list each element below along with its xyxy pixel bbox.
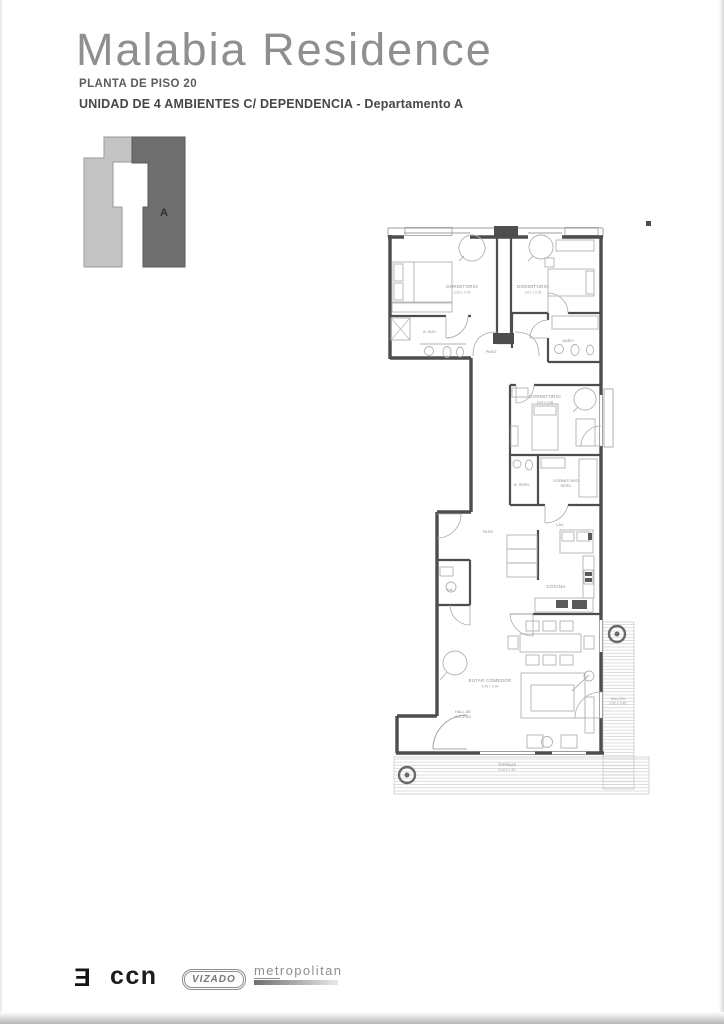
armchair-round <box>443 651 467 675</box>
label-dormitorio-1: DORMITORIO <box>446 284 478 289</box>
desk <box>576 419 595 446</box>
plan-furniture <box>391 235 598 748</box>
metropolitan-prefix: met <box>254 963 280 979</box>
ccn-logo: ccn <box>110 962 158 991</box>
armchair-round <box>574 388 596 410</box>
vizado-badge-logo: VIZADO <box>182 969 246 990</box>
metropolitan-rest: ropolitan <box>280 963 342 978</box>
bathroom-fixtures <box>552 316 598 356</box>
label-dorm-serv-2: SERV. <box>560 483 571 488</box>
label-bano-serv: B. SERV. <box>514 482 530 487</box>
key-plan-light-unit <box>84 137 132 267</box>
label-estar-dims: 5.48 x 6.90 <box>482 685 499 689</box>
bedroom3-balcony-rail <box>604 389 613 447</box>
label-balcon-dims: 0.90 x 5.45 <box>610 702 627 706</box>
label-terraza: TERRAZA <box>498 762 517 767</box>
label-bano: BAÑO <box>562 338 573 343</box>
bed-single <box>532 404 558 450</box>
bed-double <box>392 262 452 312</box>
label-paso-2: PASO <box>483 529 494 534</box>
label-hall-2: ACCESO <box>455 714 471 719</box>
label-dormitorio-2-dims: 3.07 x 3.05 <box>525 291 542 295</box>
brochure-page: Malabia Residence PLANTA DE PISO 20 UNID… <box>0 0 724 1024</box>
label-dormitorio-1-dims: 3.28 x 3.05 <box>454 291 471 295</box>
bed-single <box>548 269 594 296</box>
label-toilette: Toil. <box>447 587 454 592</box>
page-edge-left <box>0 0 2 1024</box>
label-lavadero: LAV. <box>556 522 564 527</box>
label-estar: ESTAR COMEDOR <box>469 678 512 683</box>
armchair-round <box>529 235 553 259</box>
vizado-badge-text: VIZADO <box>192 974 236 985</box>
terrace-deck <box>394 622 649 794</box>
metropolitan-gradient-bar <box>254 980 338 985</box>
label-terraza-dims: 8.10 x 1.50 <box>499 768 516 772</box>
bathroom-fixtures <box>391 318 466 358</box>
floor-lamp <box>584 671 594 681</box>
label-paso-1: PASO <box>486 349 497 354</box>
label-bano-aux: B. AUX. <box>423 329 437 334</box>
label-dormitorio-3: DORMITORIO <box>529 394 561 399</box>
page-edge-right <box>719 0 724 1024</box>
label-dormitorio-3-dims: 3.04 x 3.56 <box>537 401 554 405</box>
bathroom-fixtures <box>513 460 533 470</box>
floor-plan: DORMITORIO 3.28 x 3.05 DORMITORIO 3.07 x… <box>383 214 713 804</box>
bed-single <box>579 459 597 497</box>
key-plan-dark-unit-a <box>132 137 185 267</box>
developer-logo-mark: Ǝ <box>74 964 91 993</box>
bathtub <box>552 316 598 329</box>
label-balcon: BALCÓN <box>611 696 625 701</box>
page-edge-bottom <box>0 1012 724 1024</box>
dining-table <box>508 621 594 665</box>
tv-unit <box>585 697 594 733</box>
plan-walls-inner <box>390 237 601 614</box>
key-plan-unit-label: A <box>160 207 168 219</box>
metropolitan-logo: metropolitan <box>254 963 342 985</box>
label-dormitorio-2: DORMITORIO <box>517 284 549 289</box>
label-cocina: COCINA <box>546 584 566 589</box>
desk <box>556 240 594 251</box>
wardrobe <box>507 535 537 577</box>
sofa-set <box>521 671 594 748</box>
metropolitan-wordmark: metropolitan <box>254 963 342 978</box>
plan-wall-blocks <box>493 221 651 344</box>
kitchen-counters <box>535 530 594 612</box>
